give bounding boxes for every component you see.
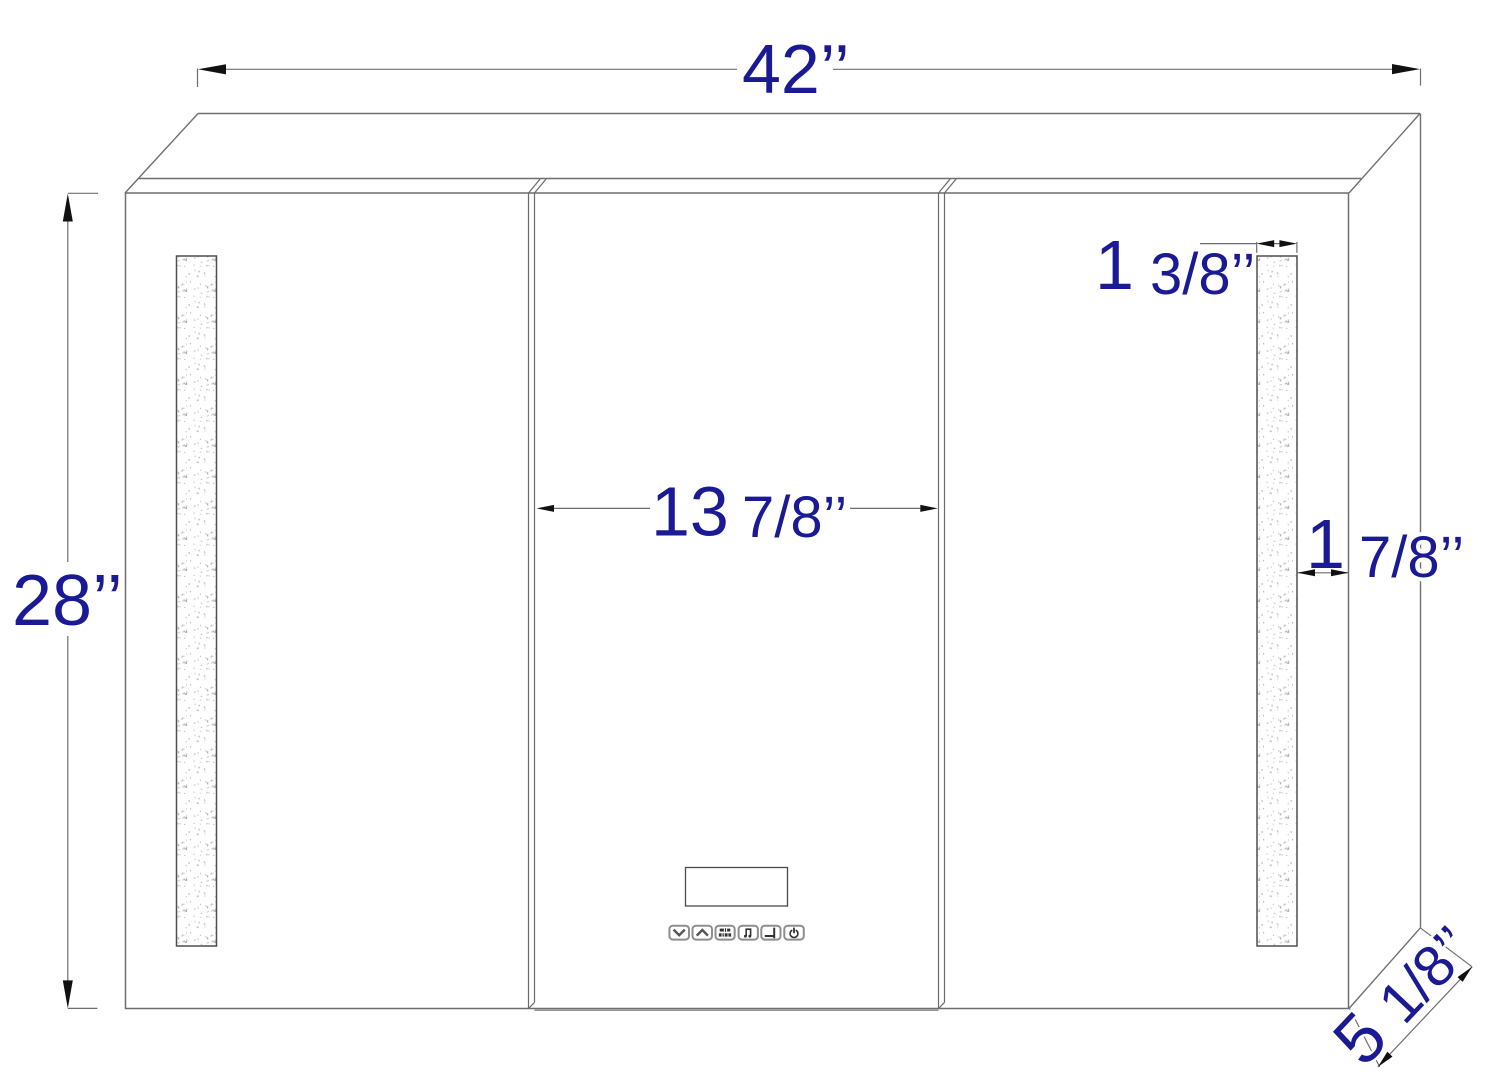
svg-text:42’’: 42’’ [742,30,850,108]
svg-text:3/8’’: 3/8’’ [1150,242,1255,307]
svg-text:7/8’’: 7/8’’ [1359,525,1464,590]
svg-text:13: 13 [651,473,729,551]
svg-text:28’’: 28’’ [12,561,123,641]
svg-text:7/8’’: 7/8’’ [742,485,847,550]
svg-text:1: 1 [1095,226,1134,304]
